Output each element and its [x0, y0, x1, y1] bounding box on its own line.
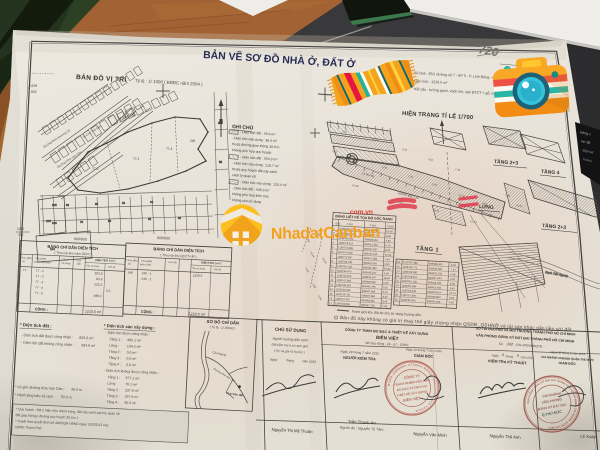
- svg-text:77: 77: [23, 268, 27, 272]
- svg-text:0.10: 0.10: [383, 290, 389, 294]
- svg-text:2.92: 2.92: [450, 277, 456, 281]
- svg-text:246: 246: [128, 271, 134, 275]
- svg-text:7.44: 7.44: [385, 257, 391, 261]
- svg-text:5.48: 5.48: [450, 272, 456, 276]
- svg-text:64: 64: [150, 200, 154, 204]
- svg-text:năm 2015: năm 2015: [521, 355, 535, 360]
- svg-text:78: 78: [80, 220, 84, 224]
- svg-text:77 - 4: 77 - 4: [35, 285, 44, 289]
- svg-text:1220.5: 1220.5: [193, 273, 203, 277]
- svg-text:Tầng 4 :: Tầng 4 :: [106, 400, 119, 405]
- svg-text:77 - 5: 77 - 5: [35, 291, 44, 295]
- svg-text:0.0 m²: 0.0 m²: [126, 357, 137, 361]
- svg-text:Tầng 2 :: Tầng 2 :: [109, 350, 122, 355]
- svg-text:3.49: 3.49: [450, 286, 456, 290]
- svg-text:3.2: 3.2: [106, 289, 111, 293]
- svg-text:3.45: 3.45: [382, 299, 388, 303]
- svg-text:3.04: 3.04: [451, 263, 457, 267]
- svg-text:Số :: Số :: [499, 342, 505, 346]
- svg-text:đất: đất: [77, 263, 81, 266]
- svg-text:394.9 m²: 394.9 m²: [81, 343, 96, 348]
- svg-text:Lửng :: Lửng :: [107, 381, 117, 385]
- svg-text:1.80: 1.80: [384, 262, 390, 266]
- svg-text:tháng: tháng: [286, 358, 294, 362]
- svg-text:825.6 m²: 825.6 m²: [79, 336, 94, 341]
- svg-text:3.42: 3.42: [382, 295, 388, 299]
- svg-text:1199: 1199: [17, 227, 24, 231]
- svg-text:134.5 m²: 134.5 m²: [127, 344, 142, 349]
- svg-text:6.04: 6.04: [385, 248, 391, 252]
- svg-text:14.44: 14.44: [385, 253, 392, 257]
- svg-text:246 - 2: 246 - 2: [141, 277, 151, 281]
- svg-text:0.10: 0.10: [383, 281, 389, 285]
- svg-text:Cạnh: Cạnh: [387, 224, 394, 228]
- svg-text:609/800: 609/800: [157, 236, 170, 240]
- svg-text:phân chiết: phân chiết: [140, 263, 151, 267]
- svg-text:246: 246: [190, 139, 196, 143]
- svg-text:237.9 m²: 237.9 m²: [125, 395, 140, 400]
- svg-text:Tầng 3 :: Tầng 3 :: [107, 394, 120, 399]
- svg-text:242: 242: [506, 342, 514, 347]
- svg-text:4.62: 4.62: [386, 239, 392, 243]
- svg-text:19.32: 19.32: [384, 267, 391, 271]
- svg-text:Còn lại: Còn lại: [214, 269, 222, 271]
- svg-text:.com.vn: .com.vn: [348, 209, 373, 216]
- svg-text:Loại đất: Loại đất: [168, 261, 177, 264]
- svg-text:9: 9: [517, 354, 519, 358]
- svg-text:tháng: tháng: [506, 354, 514, 358]
- svg-text:0.0 m²: 0.0 m²: [126, 363, 137, 367]
- svg-text:Tầng 2 :: Tầng 2 :: [107, 388, 120, 393]
- svg-text:93: 93: [148, 217, 152, 221]
- svg-text:Tầng 1 :: Tầng 1 :: [109, 337, 122, 342]
- svg-text:1220.5 m²: 1220.5 m²: [85, 310, 102, 315]
- svg-text:488.4: 488.4: [94, 294, 102, 298]
- svg-text:60: 60: [178, 216, 182, 220]
- svg-text:9.34: 9.34: [449, 300, 455, 304]
- svg-text:333.3: 333.3: [94, 283, 102, 287]
- svg-text:237.9 m²: 237.9 m²: [125, 388, 140, 393]
- svg-text:GIÁM ĐỐC: GIÁM ĐỐC: [414, 353, 434, 359]
- svg-text:700: 700: [18, 233, 24, 237]
- svg-text:Ngày: Ngày: [492, 353, 500, 357]
- svg-text:7.40: 7.40: [382, 304, 388, 308]
- svg-text:50.0 m: 50.0 m: [61, 395, 72, 399]
- svg-text:88: 88: [95, 202, 99, 206]
- svg-text:3.62: 3.62: [383, 285, 389, 289]
- svg-text:4.04: 4.04: [384, 271, 390, 275]
- svg-text:77 - 1: 77 - 1: [36, 269, 45, 273]
- svg-text:3.34: 3.34: [386, 234, 392, 238]
- svg-text:năm 2015: năm 2015: [302, 359, 317, 364]
- svg-text:823.6: 823.6: [95, 271, 103, 275]
- svg-text:246 - 1: 246 - 1: [142, 271, 152, 275]
- svg-text:Tầng 3 :: Tầng 3 :: [108, 356, 121, 361]
- svg-text:55: 55: [219, 160, 223, 164]
- svg-text:77 - 3: 77 - 3: [35, 280, 44, 284]
- svg-text:84: 84: [122, 201, 126, 205]
- svg-text:Lê Xuân: Lê Xuân: [580, 434, 597, 440]
- svg-text:8: 8: [502, 353, 504, 357]
- svg-text:Ngày: Ngày: [270, 357, 278, 361]
- svg-text:7.27: 7.27: [451, 267, 457, 271]
- svg-text:106: 106: [52, 221, 57, 225]
- svg-text:NhadatCanban: NhadatCanban: [271, 224, 381, 243]
- svg-text:105: 105: [52, 203, 57, 207]
- svg-text:Lửng :: Lửng :: [109, 343, 119, 347]
- svg-text:100: 100: [46, 219, 51, 223]
- svg-text:93: 93: [66, 203, 70, 207]
- svg-text:77-6: 77-6: [92, 167, 99, 171]
- svg-text:LỬNG: LỬNG: [479, 203, 494, 211]
- svg-text:10.98: 10.98: [386, 229, 393, 233]
- svg-text:800: 800: [31, 90, 37, 94]
- svg-text:377.1 m²: 377.1 m²: [125, 376, 140, 381]
- svg-text:TẦNG 4: TẦNG 4: [541, 168, 560, 176]
- svg-text:77-4: 77-4: [166, 147, 173, 151]
- svg-text:609/800: 609/800: [74, 237, 87, 241]
- svg-text:30.3 m²: 30.3 m²: [124, 401, 137, 406]
- svg-text:9.34: 9.34: [449, 296, 455, 300]
- svg-text:Tầng 4 :: Tầng 4 :: [108, 362, 121, 367]
- svg-text:30.0 m: 30.0 m: [71, 387, 82, 391]
- svg-text:59: 59: [108, 219, 112, 223]
- svg-text:16.64: 16.64: [383, 276, 390, 280]
- svg-text:76.1 m²: 76.1 m²: [125, 382, 138, 387]
- svg-text:5.10: 5.10: [385, 243, 391, 247]
- svg-text:77 - 2: 77 - 2: [35, 274, 44, 278]
- svg-text:ch.nhựg: ch.nhựg: [62, 262, 72, 265]
- svg-text:41.76: 41.76: [449, 291, 456, 295]
- svg-text:1199: 1199: [30, 84, 37, 88]
- svg-text:CỘNG :: CỘNG :: [141, 309, 154, 315]
- svg-text:CỘNG :: CỘNG :: [35, 306, 48, 312]
- svg-text:Còn lại: Còn lại: [108, 267, 116, 269]
- svg-text:0.0 m²: 0.0 m²: [127, 350, 138, 354]
- svg-text:Tầng 1 :: Tầng 1 :: [107, 375, 120, 380]
- svg-text:495.1 m²: 495.1 m²: [127, 338, 142, 343]
- svg-text:83.6: 83.6: [96, 277, 103, 281]
- svg-text:77-1: 77-1: [133, 157, 140, 161]
- svg-text:3.49: 3.49: [450, 282, 456, 286]
